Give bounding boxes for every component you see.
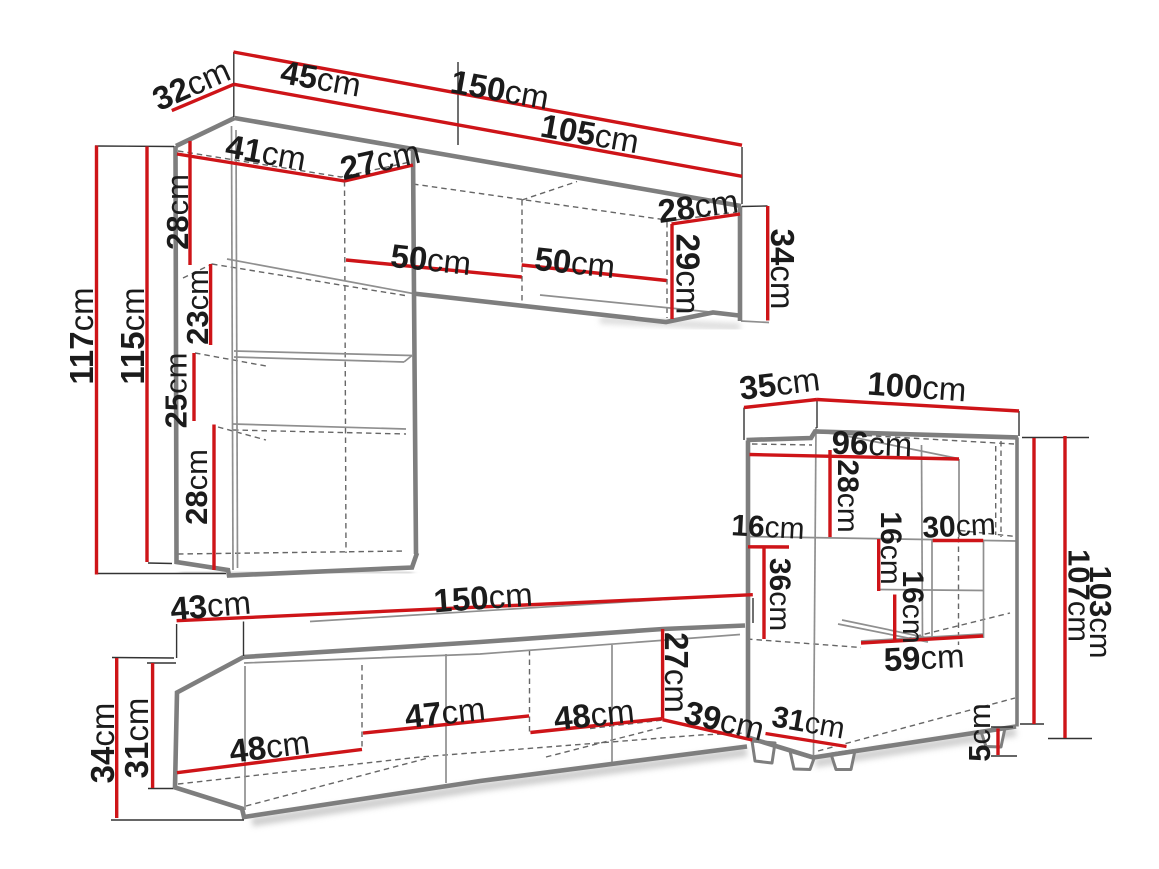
svg-text:28cm: 28cm: [179, 449, 214, 525]
svg-text:100cm: 100cm: [866, 364, 967, 408]
svg-text:59cm: 59cm: [883, 636, 966, 677]
svg-text:28cm: 28cm: [832, 459, 865, 532]
svg-text:5cm: 5cm: [962, 703, 997, 762]
svg-text:27cm: 27cm: [659, 632, 696, 713]
svg-text:16cm: 16cm: [897, 570, 930, 643]
svg-text:107cm: 107cm: [1062, 549, 1097, 642]
svg-text:34cm: 34cm: [765, 229, 802, 310]
svg-text:150cm: 150cm: [432, 575, 533, 619]
svg-text:16cm: 16cm: [730, 509, 805, 546]
svg-text:29cm: 29cm: [670, 234, 707, 315]
svg-text:31cm: 31cm: [118, 698, 155, 779]
svg-text:96cm: 96cm: [831, 423, 913, 463]
svg-text:30cm: 30cm: [921, 508, 996, 545]
svg-text:36cm: 36cm: [764, 558, 797, 631]
svg-text:23cm: 23cm: [180, 269, 215, 345]
svg-text:43cm: 43cm: [169, 583, 253, 627]
svg-text:28cm: 28cm: [160, 174, 195, 250]
svg-text:34cm: 34cm: [84, 703, 121, 784]
svg-text:115cm: 115cm: [114, 287, 151, 384]
svg-text:25cm: 25cm: [158, 353, 193, 429]
svg-text:117cm: 117cm: [63, 287, 100, 384]
